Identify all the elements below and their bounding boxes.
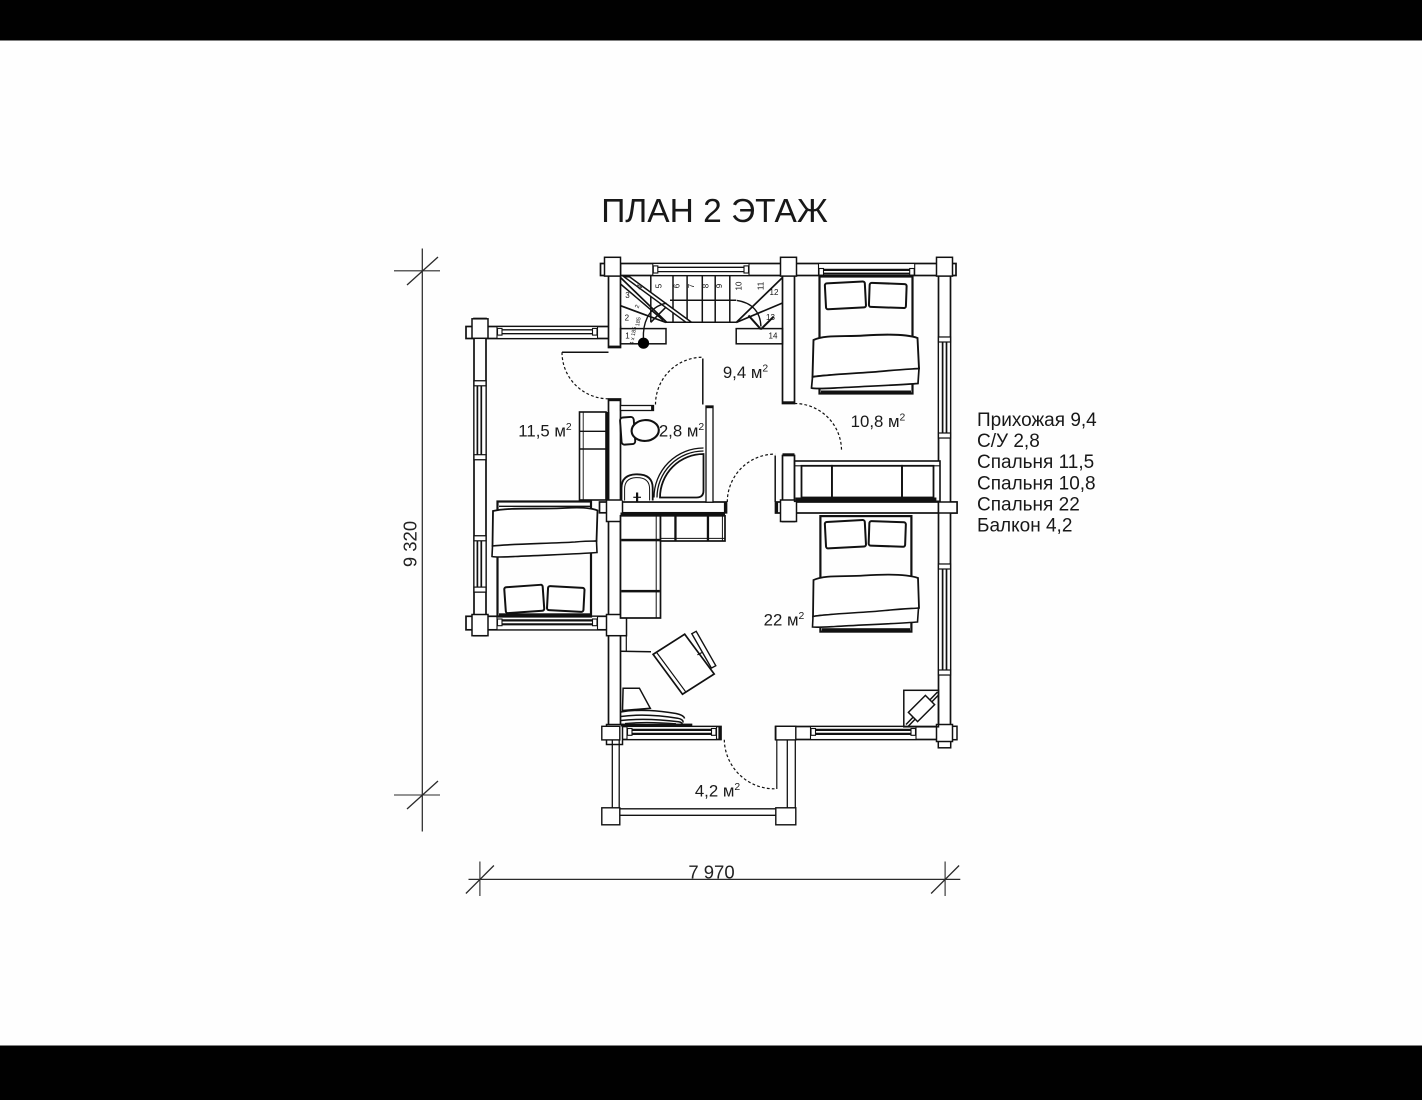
svg-text:Балкон 4,2: Балкон 4,2 <box>977 516 1072 537</box>
svg-text:Прихожая 9,4: Прихожая 9,4 <box>977 410 1097 431</box>
svg-text:Спальня 11,5: Спальня 11,5 <box>977 452 1094 473</box>
svg-text:9 320: 9 320 <box>400 521 421 567</box>
svg-text:11,5 м2: 11,5 м2 <box>518 422 572 441</box>
svg-text:2,8 м2: 2,8 м2 <box>659 422 705 441</box>
svg-text:12: 12 <box>770 288 779 297</box>
svg-text:Спальня 10,8: Спальня 10,8 <box>977 473 1096 494</box>
svg-text:2: 2 <box>625 314 630 323</box>
svg-text:10,8 м2: 10,8 м2 <box>851 412 906 431</box>
svg-text:С/У 2,8: С/У 2,8 <box>977 431 1040 452</box>
svg-text:6: 6 <box>673 283 682 288</box>
svg-text:9: 9 <box>715 283 724 288</box>
svg-text:3: 3 <box>625 291 630 300</box>
svg-text:9,4 м2: 9,4 м2 <box>723 363 769 382</box>
svg-text:22 м2: 22 м2 <box>764 611 805 630</box>
svg-text:8: 8 <box>702 283 711 288</box>
svg-text:7 970: 7 970 <box>688 862 734 883</box>
svg-text:14: 14 <box>769 332 778 341</box>
svg-text:ПЛАН 2 ЭТАЖ: ПЛАН 2 ЭТАЖ <box>601 193 828 230</box>
svg-text:10: 10 <box>735 281 744 290</box>
svg-text:7: 7 <box>687 283 696 288</box>
svg-text:13: 13 <box>766 313 775 322</box>
svg-text:5: 5 <box>655 283 664 288</box>
svg-text:4,2 м2: 4,2 м2 <box>695 782 741 801</box>
svg-text:Спальня 22: Спальня 22 <box>977 494 1080 515</box>
svg-text:11: 11 <box>757 281 766 290</box>
